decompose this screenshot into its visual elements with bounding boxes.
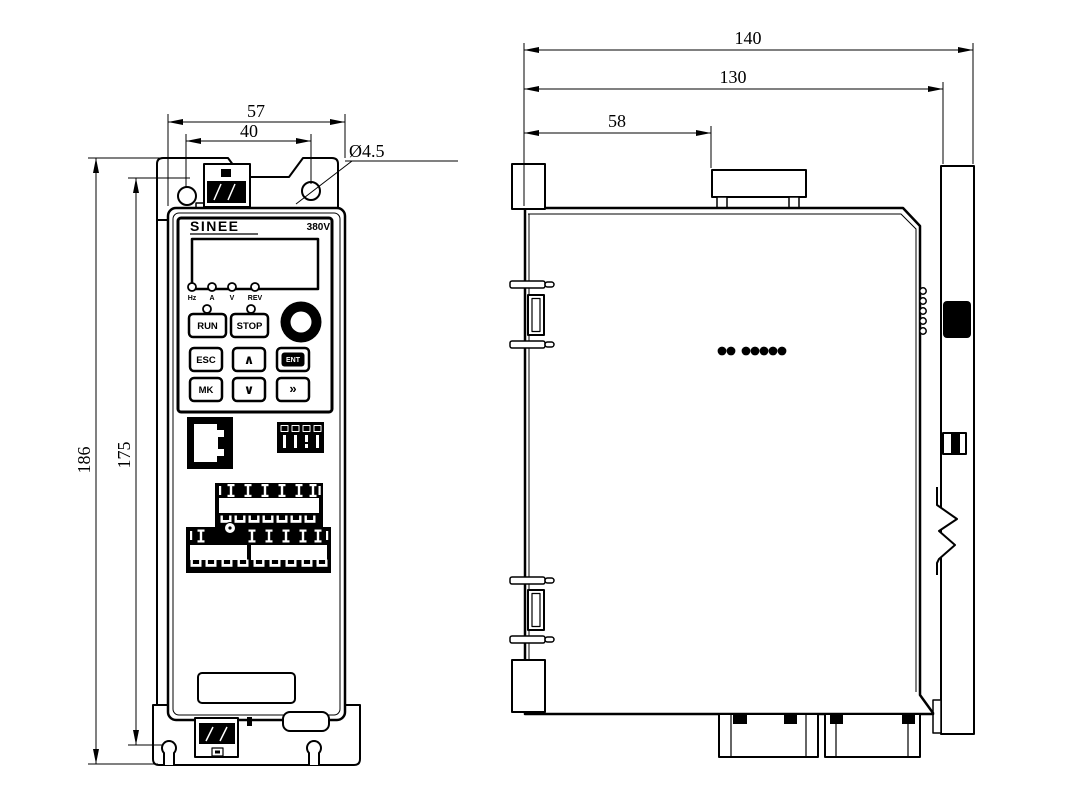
top-tab-label [207, 181, 246, 203]
clip-pin-1 [510, 281, 554, 288]
brand-logo: SINEE [190, 218, 240, 234]
rj45-jack [187, 417, 233, 469]
plate-foot [933, 700, 941, 733]
din-clip-stop [943, 433, 966, 454]
dim-width-57: 57 [247, 101, 265, 121]
mount-hole-left [178, 187, 196, 205]
side-rivet-dots [718, 347, 787, 356]
led-label-rev: REV [248, 295, 263, 302]
vfd-dimension-drawing: SINEE 380V Hz A V REV RUN STOP [0, 0, 1080, 800]
side-terminal-block-large [825, 714, 920, 757]
up-button-label: ∧ [244, 352, 255, 367]
ent-button: ENT [277, 348, 309, 371]
side-face-top-tab [512, 164, 545, 209]
dip-switch-block [277, 422, 324, 453]
display-window [192, 239, 318, 289]
stop-button-label: STOP [237, 321, 263, 332]
front-view: SINEE 380V Hz A V REV RUN STOP [74, 101, 458, 765]
top-tab-small-mark [221, 169, 231, 177]
mk-button-label: MK [199, 385, 214, 396]
clip-pin-4 [510, 636, 554, 643]
technical-drawing-page: SINEE 380V Hz A V REV RUN STOP [0, 0, 1080, 800]
keypad-panel: SINEE 380V Hz A V REV RUN STOP [178, 218, 332, 412]
dim-depth-140: 140 [735, 28, 762, 48]
bottom-mount-tab [195, 718, 238, 757]
ent-button-label: ENT [286, 357, 301, 364]
dim-offset-58: 58 [608, 111, 626, 131]
bottom-tab-label [199, 723, 235, 744]
bottom-seam-mark [247, 717, 252, 726]
terminal-block-lower [186, 523, 331, 574]
esc-button-label: ESC [196, 355, 216, 366]
top-mount-tab [196, 164, 250, 212]
nameplate-label [198, 673, 295, 703]
dim-height-175: 175 [114, 442, 134, 469]
clip-slot-1 [528, 295, 544, 335]
voltage-label: 380V [307, 222, 331, 233]
clip-slot-2 [528, 590, 544, 630]
stop-led [247, 305, 255, 313]
terminal-block-upper [215, 483, 323, 528]
dim-width-40: 40 [240, 121, 258, 141]
led-label-hz: Hz [188, 295, 197, 302]
dim-depth-130: 130 [720, 67, 747, 87]
side-body [525, 208, 933, 714]
keyhole-slot-left [162, 741, 176, 765]
side-face-bottom-tab [512, 660, 545, 712]
din-rail-hook [943, 301, 971, 338]
shift-button-label: » [289, 381, 296, 396]
clip-pin-2 [510, 341, 554, 348]
run-led [203, 305, 211, 313]
side-terminal-block-small [719, 714, 818, 757]
side-view: 140 130 58 [510, 28, 974, 757]
down-button-label: ∨ [244, 382, 255, 397]
side-top-tab [712, 170, 806, 208]
dim-hole-diameter: Ø4.5 [349, 141, 385, 161]
run-button-label: RUN [197, 321, 218, 332]
bottom-handle-slot [283, 712, 329, 731]
clip-pin-3 [510, 577, 554, 584]
dim-height-186: 186 [74, 447, 94, 474]
potentiometer-knob [281, 302, 322, 343]
keyhole-slot-right [307, 741, 321, 765]
led-label-v: V [230, 295, 235, 302]
led-label-a: A [209, 295, 214, 302]
